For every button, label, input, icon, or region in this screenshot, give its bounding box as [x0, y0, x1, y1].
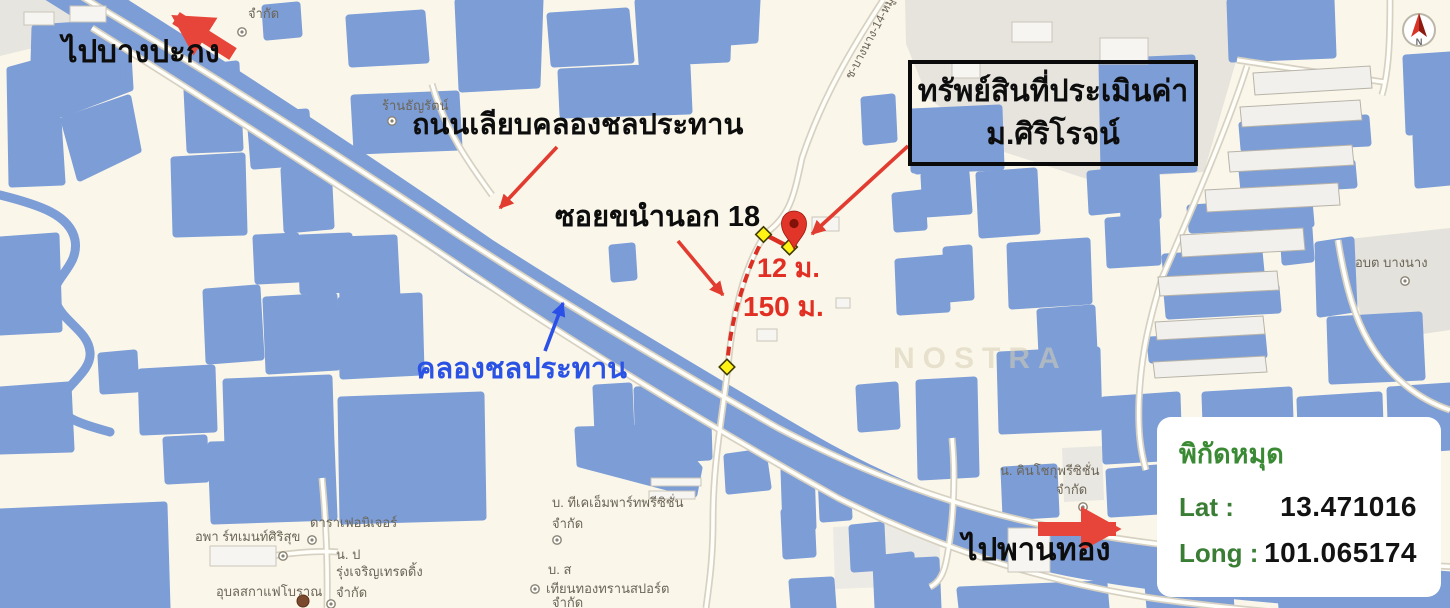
pond	[792, 580, 833, 608]
property-callout-line2: ม.ศิริโรจน์	[986, 113, 1120, 157]
pond	[864, 97, 894, 142]
pond	[895, 193, 924, 229]
compass: N	[1403, 13, 1435, 48]
map-watermark: NOSTRA	[893, 342, 1068, 375]
poi-kinshoku-2: จำกัด	[1056, 482, 1087, 497]
label-canal: คลองชลประทาน	[416, 354, 627, 384]
label-distance-12m: 12 ม.	[757, 254, 820, 282]
pond	[206, 288, 261, 361]
poi-thianthong-2: จำกัด	[552, 595, 583, 608]
latitude-row: Lat : 13.471016	[1179, 491, 1417, 523]
pond	[101, 353, 136, 391]
latitude-label: Lat :	[1179, 492, 1234, 523]
pond	[1230, 0, 1333, 59]
longitude-row: Long : 101.065174	[1179, 537, 1417, 569]
pond	[612, 246, 634, 279]
pond	[174, 156, 244, 234]
longitude-value: 101.065174	[1264, 537, 1417, 569]
longitude-label: Long :	[1179, 538, 1258, 569]
pond	[1090, 171, 1123, 212]
pond	[1109, 468, 1159, 514]
pond	[946, 248, 971, 299]
pond	[211, 442, 334, 521]
pond	[1122, 171, 1158, 219]
poi-b-s: บ. ส	[548, 562, 571, 577]
label-to-bangpakong: ไปบางปะกง	[62, 36, 220, 69]
property-callout-line1: ทรัพย์สินที่ประเมินค่า	[918, 70, 1189, 114]
label-distance-150m: 150 ม.	[743, 292, 824, 321]
poi-kinshoku: น. คินโชกุพรีซิชั่น	[1000, 462, 1100, 479]
poi-rung-trading: รุ่งเจริญเทรดดิ้ง	[336, 562, 423, 580]
pond	[1406, 55, 1450, 132]
poi-obt-bangnang: อบต บางนาง	[1355, 255, 1428, 270]
label-soi: ซอยขนำนอก 18	[555, 202, 760, 232]
poi-dara-furniture: ดาราเฟอนิเจอร์	[310, 515, 397, 530]
property-pin-center	[789, 219, 798, 228]
poi-rung-trading-2: จำกัด	[336, 585, 367, 600]
pond	[226, 378, 331, 447]
pond	[700, 0, 757, 44]
pond	[458, 0, 540, 89]
latitude-value: 13.471016	[1280, 491, 1417, 523]
pond	[550, 11, 631, 64]
map-stage: NOSTRA จำกัด ร้านธัญรัตน์ อพา ร์ทเมนท์ศิ…	[0, 0, 1450, 608]
pond	[784, 510, 813, 556]
label-road-canal: ถนนเลียบคลองชลประทาน	[412, 110, 743, 140]
poi-company-top: จำกัด	[248, 6, 279, 21]
pond	[1108, 217, 1158, 265]
label-to-phanthong: ไปพานทอง	[962, 534, 1111, 567]
pond	[1010, 241, 1089, 306]
poi-tkm-parts: บ. ทีเคเอ็มพาร์ทพรีซิชั่น	[552, 493, 684, 510]
pond	[924, 173, 969, 214]
pond	[0, 236, 59, 332]
property-callout-box: ทรัพย์สินที่ประเมินค่า ม.ศิริโรจน์	[908, 60, 1198, 166]
pond	[859, 385, 897, 429]
pond	[898, 258, 947, 312]
poi-tkm-parts-2: จำกัด	[552, 516, 583, 531]
coordinates-title: พิกัดหมุด	[1179, 432, 1417, 475]
poi-apartment: อพา ร์ทเมนท์ศิริสุข	[195, 529, 300, 545]
pond	[141, 368, 214, 432]
pond	[301, 236, 351, 291]
pond	[256, 236, 298, 281]
pond	[166, 438, 206, 481]
poi-thianthong: เทียนทองทรานสปอร์ต	[546, 581, 669, 596]
pond	[979, 171, 1037, 235]
pond	[349, 13, 426, 64]
compass-n-label: N	[1416, 37, 1423, 48]
pond	[0, 505, 167, 608]
pond	[919, 380, 976, 477]
poi-ubon-coffee: อุบลสกาแฟโบราณ	[216, 584, 322, 600]
pond	[1416, 134, 1450, 185]
pond	[561, 66, 689, 115]
pond	[266, 296, 337, 371]
coordinates-panel: พิกัดหมุด Lat : 13.471016 Long : 101.065…	[1157, 417, 1441, 597]
pond	[341, 395, 483, 521]
pond	[341, 296, 421, 376]
poi-n-p: น. ป	[336, 547, 360, 562]
